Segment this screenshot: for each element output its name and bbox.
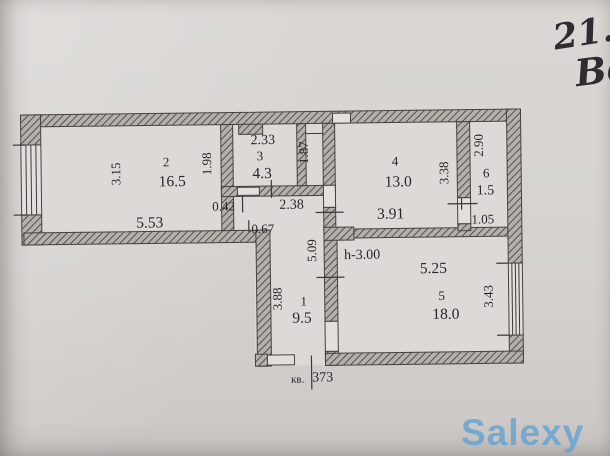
room6-area: 1.5 xyxy=(477,183,495,198)
dim-closet-length: 1.87 xyxy=(296,141,311,164)
dim-room5-height: 3.43 xyxy=(481,285,496,308)
room1-number: 1 xyxy=(300,294,307,309)
salexy-watermark: Salexy xyxy=(461,412,584,454)
dim-hall-length: 5.09 xyxy=(304,239,319,262)
room2-area: 16.5 xyxy=(159,173,187,190)
dim-room4-width: 3.91 xyxy=(377,205,404,222)
window-right xyxy=(508,263,523,335)
dim-067: 0.67 xyxy=(251,221,274,236)
floorplan-drawing: 3.15 2 16.5 5.53 1.98 2.33 3 4.3 1.87 0.… xyxy=(0,0,610,456)
room4-number: 4 xyxy=(392,153,399,168)
window-left xyxy=(21,145,42,215)
dim-hall-width: 3.88 xyxy=(270,287,285,310)
room1-area: 9.5 xyxy=(292,310,312,327)
room6-number: 6 xyxy=(483,165,490,180)
dim-room6-width: 1.05 xyxy=(471,211,494,226)
dim-room3-width: 2.33 xyxy=(250,133,275,148)
dim-room2-width: 3.15 xyxy=(108,162,123,185)
room4-area: 13.0 xyxy=(385,173,413,190)
room3-number: 3 xyxy=(257,148,264,163)
wall-notch xyxy=(332,113,350,123)
dim-room6-height: 2.90 xyxy=(471,134,486,157)
ceiling-height-note: h-3.00 xyxy=(344,248,380,263)
dim-room2-right: 1.98 xyxy=(199,152,214,175)
dim-room5-width: 5.25 xyxy=(420,260,448,277)
dim-238: 2.38 xyxy=(279,198,304,213)
apartment-prefix: кв. xyxy=(291,374,305,386)
room2-number: 2 xyxy=(163,154,170,169)
room5-area: 18.0 xyxy=(432,306,460,323)
room5-number: 5 xyxy=(438,288,445,303)
dim-room2-length: 5.53 xyxy=(136,214,164,231)
dim-room4-height: 3.38 xyxy=(436,161,451,184)
apartment-number: 373 xyxy=(312,370,333,385)
dim-042: 0.42 xyxy=(212,198,235,213)
room3-area: 4.3 xyxy=(252,165,272,182)
